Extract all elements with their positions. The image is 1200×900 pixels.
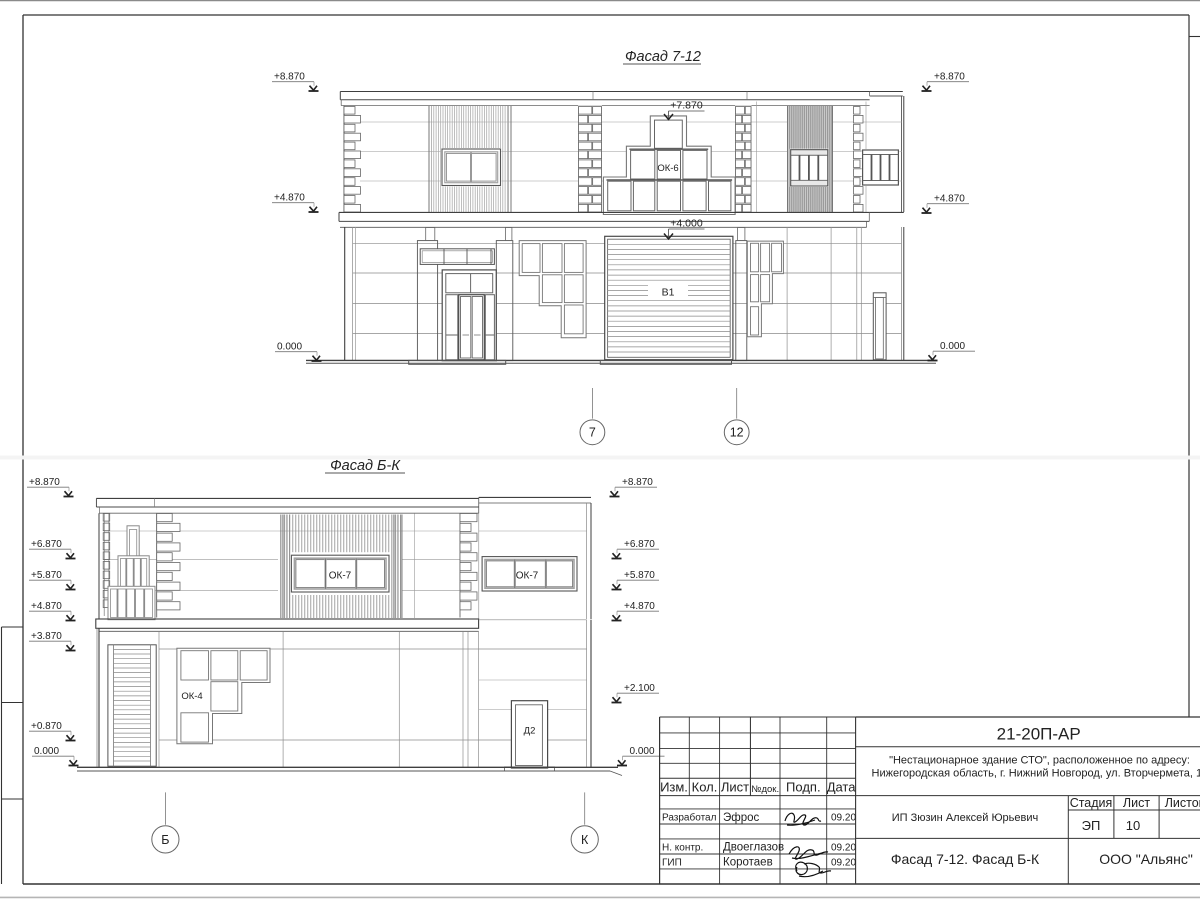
svg-text:Разработал: Разработал [662, 812, 717, 824]
svg-text:Лист: Лист [721, 780, 749, 795]
svg-text:+8.870: +8.870 [934, 72, 965, 83]
svg-text:Листов: Листов [1165, 796, 1200, 810]
svg-text:+3.870: +3.870 [31, 631, 62, 642]
svg-text:+7.870: +7.870 [670, 100, 703, 112]
svg-text:Нижегородская область, г. Нижн: Нижегородская область, г. Нижний Новгоро… [872, 768, 1200, 780]
svg-text:+5.870: +5.870 [31, 570, 62, 581]
svg-text:+8.870: +8.870 [274, 72, 305, 83]
svg-text:Н. контр.: Н. контр. [662, 842, 703, 853]
svg-text:ИП Зюзин Алексей Юрьевич: ИП Зюзин Алексей Юрьевич [892, 812, 1039, 824]
svg-text:09.20: 09.20 [831, 857, 856, 868]
svg-text:+5.870: +5.870 [624, 570, 655, 581]
svg-text:Б: Б [161, 833, 169, 847]
svg-text:К: К [581, 833, 589, 847]
svg-text:12: 12 [730, 426, 744, 440]
svg-text:+4.870: +4.870 [274, 193, 305, 204]
svg-text:+8.870: +8.870 [29, 477, 60, 488]
svg-text:21-20П-АР: 21-20П-АР [997, 725, 1081, 744]
svg-text:+8.870: +8.870 [622, 477, 653, 488]
svg-text:"Нестационарное здание СТО", р: "Нестационарное здание СТО", расположенн… [889, 755, 1190, 767]
svg-text:ОК-6: ОК-6 [657, 163, 678, 174]
svg-text:ЭП: ЭП [1082, 818, 1101, 833]
svg-text:ОК-7: ОК-7 [516, 571, 539, 582]
svg-text:Фасад Б-К: Фасад Б-К [330, 458, 401, 474]
svg-text:0.000: 0.000 [277, 342, 302, 353]
svg-text:+6.870: +6.870 [624, 539, 655, 550]
svg-text:ООО "Альянс": ООО "Альянс" [1099, 851, 1193, 867]
svg-text:+4.870: +4.870 [624, 601, 655, 612]
svg-text:Стадия: Стадия [1070, 796, 1113, 810]
svg-text:Кол.: Кол. [692, 780, 718, 795]
svg-text:ГИП: ГИП [662, 857, 682, 868]
svg-text:ОК-4: ОК-4 [181, 691, 202, 702]
svg-text:В1: В1 [662, 287, 675, 299]
svg-text:09.20: 09.20 [831, 813, 856, 824]
svg-text:Двоеглазов: Двоеглазов [723, 842, 784, 854]
svg-text:7: 7 [589, 426, 596, 440]
svg-text:09.20: 09.20 [831, 842, 856, 853]
svg-text:№док.: №док. [751, 784, 779, 795]
svg-text:Коротаев: Коротаев [723, 857, 773, 869]
svg-text:+4.870: +4.870 [31, 601, 62, 612]
svg-text:+0.870: +0.870 [31, 721, 62, 732]
svg-text:Лист: Лист [1123, 796, 1150, 810]
svg-text:+2.100: +2.100 [624, 683, 655, 694]
svg-text:Фасад 7-12. Фасад Б-К: Фасад 7-12. Фасад Б-К [891, 851, 1040, 867]
svg-text:Фасад 7-12: Фасад 7-12 [625, 49, 701, 65]
svg-text:+4.870: +4.870 [934, 194, 965, 205]
svg-text:Подп.: Подп. [786, 780, 821, 795]
svg-text:0.000: 0.000 [34, 746, 59, 757]
svg-text:ОК-7: ОК-7 [329, 571, 352, 582]
svg-text:+4.000: +4.000 [670, 218, 703, 230]
svg-text:+6.870: +6.870 [31, 539, 62, 550]
svg-text:Дата: Дата [827, 780, 857, 795]
svg-text:Изм.: Изм. [660, 780, 688, 795]
svg-text:0.000: 0.000 [940, 341, 965, 352]
svg-text:0.000: 0.000 [630, 746, 655, 757]
svg-text:10: 10 [1126, 818, 1140, 833]
svg-text:Эфрос: Эфрос [723, 812, 760, 824]
svg-text:Д2: Д2 [524, 726, 536, 737]
